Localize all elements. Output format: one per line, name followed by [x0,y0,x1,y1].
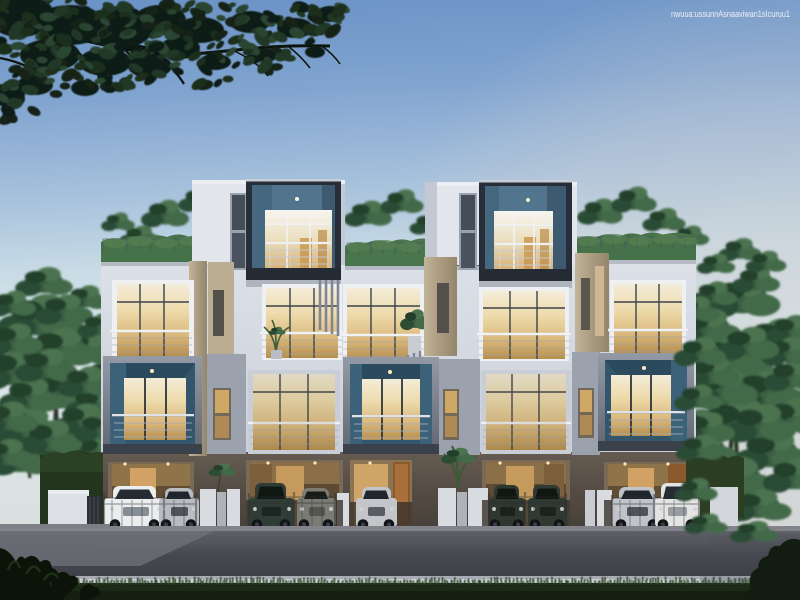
svg-text:nwuua:ussunnAsnaaviwan1sIcuruu: nwuua:ussunnAsnaaviwan1sIcuruu1 [671,9,790,19]
